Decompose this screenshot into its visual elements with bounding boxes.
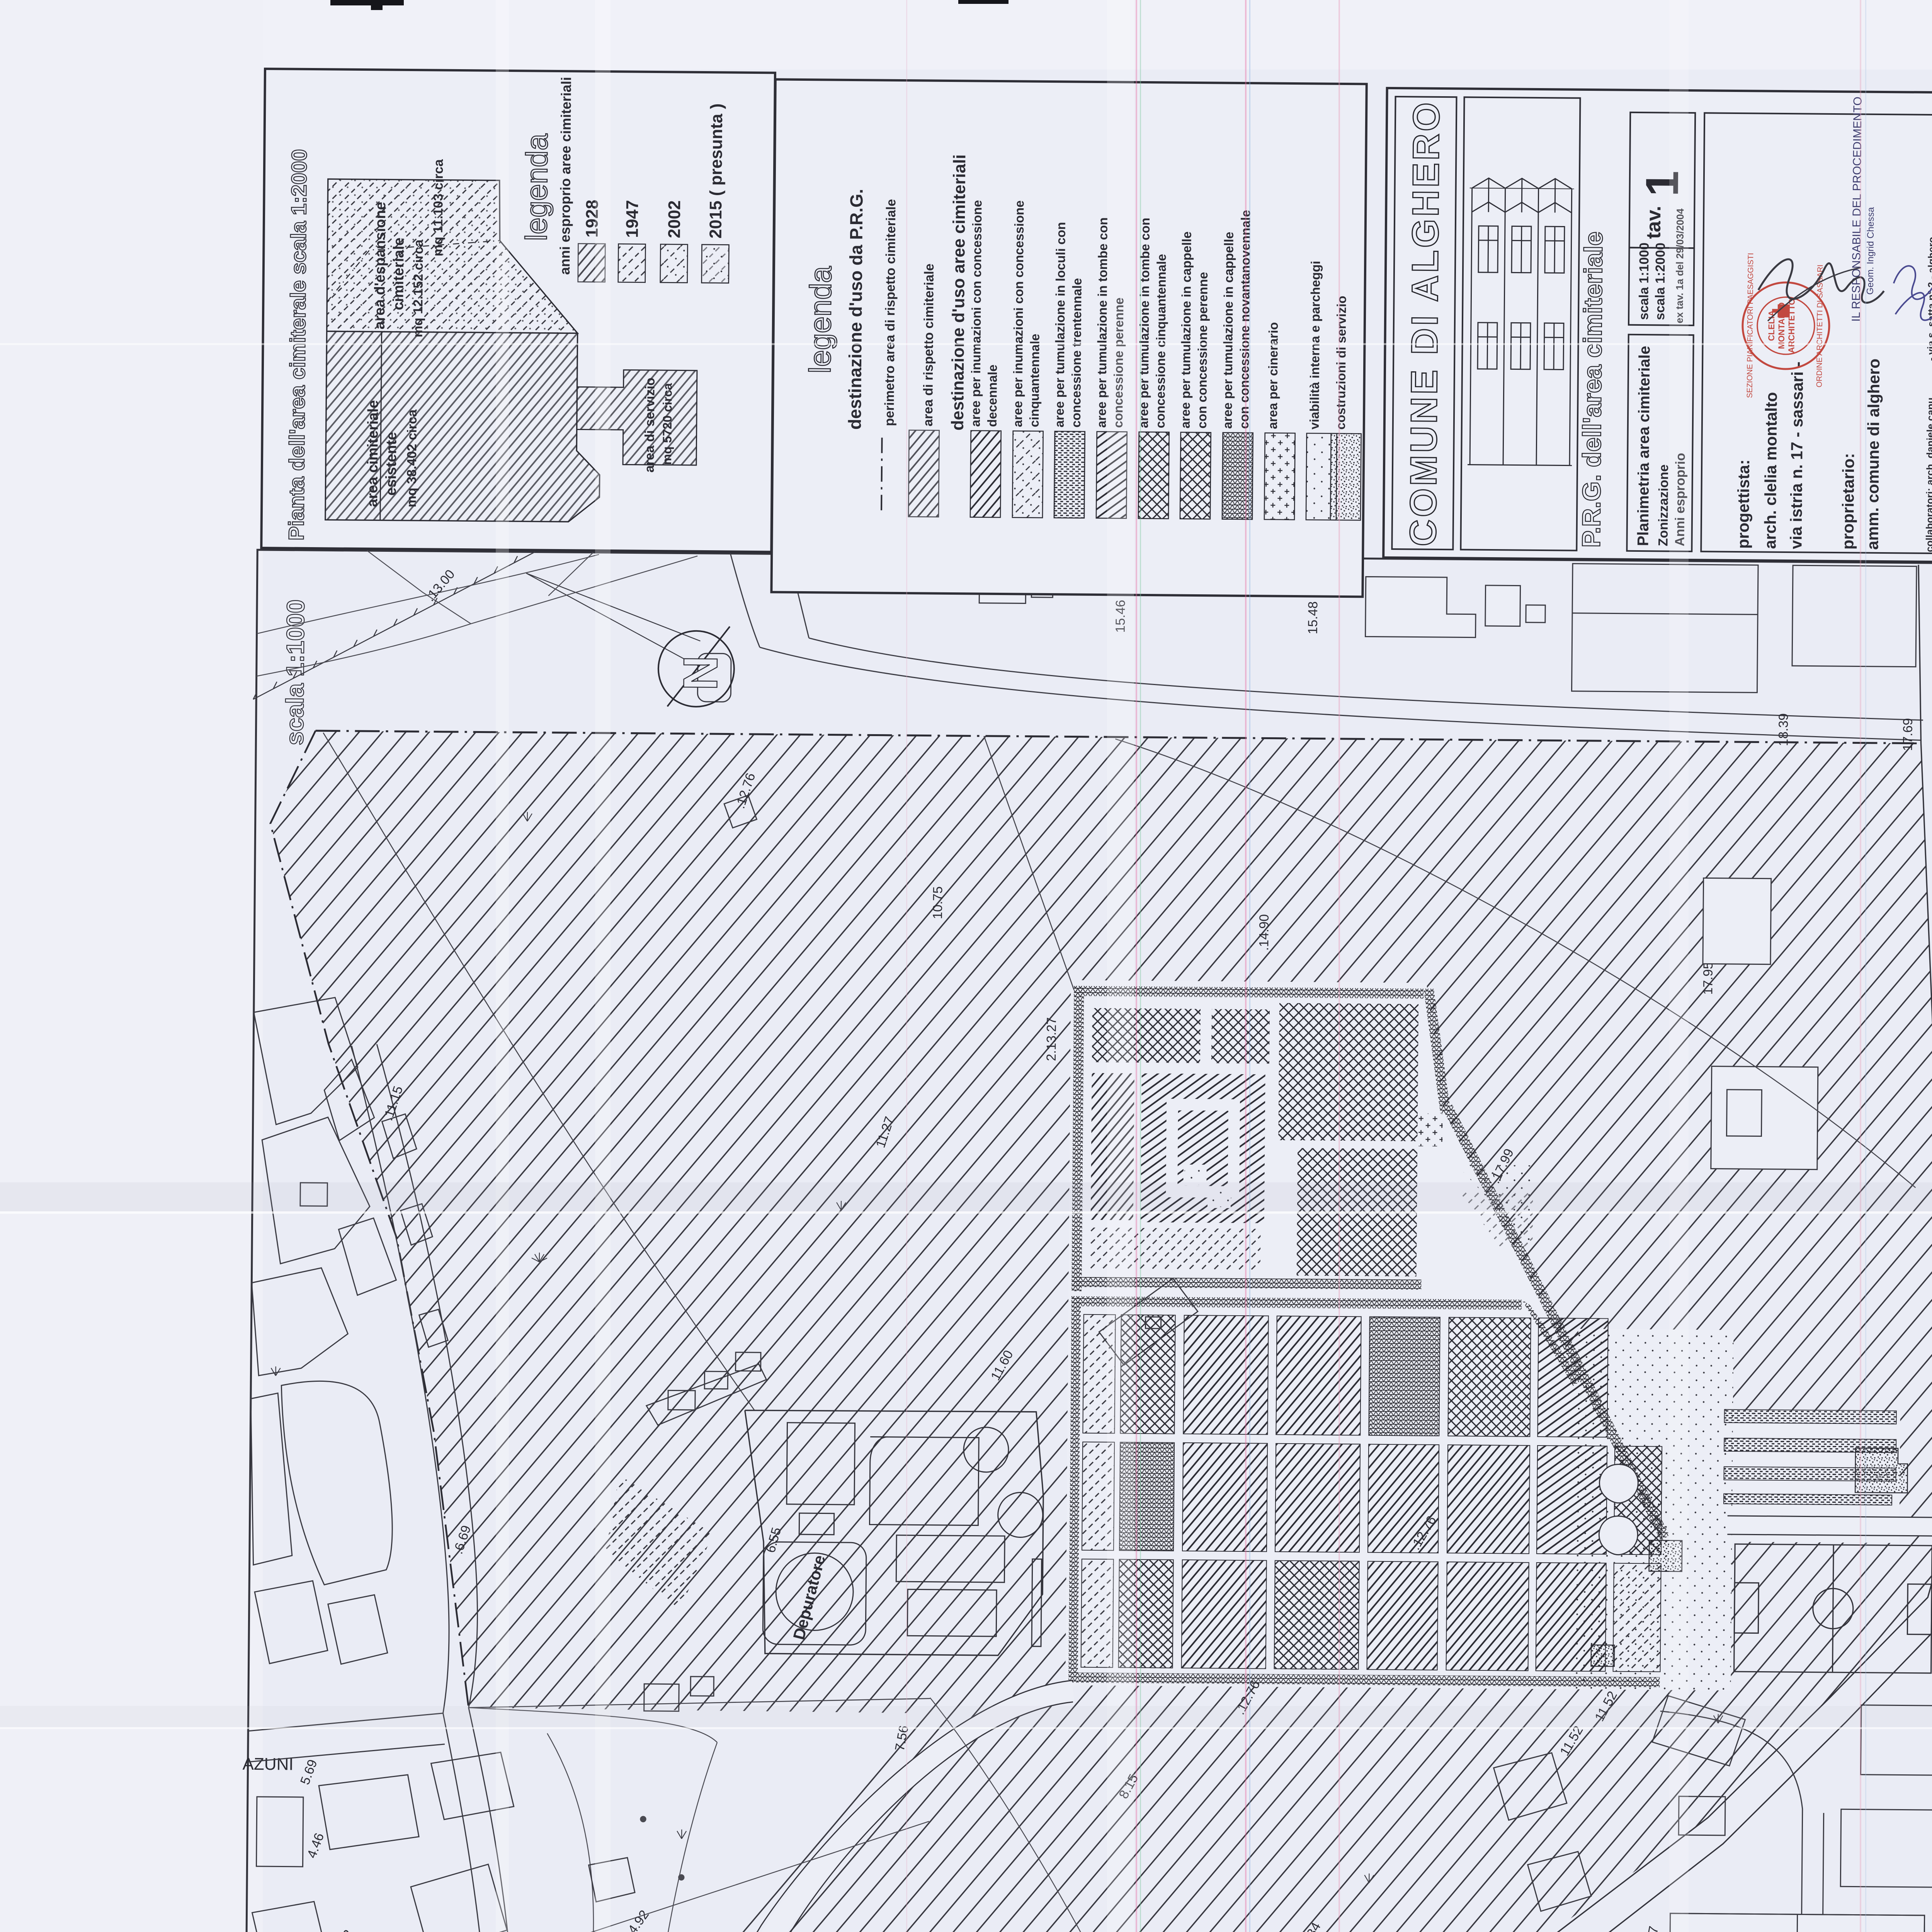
svg-text:Zonizzazione: Zonizzazione xyxy=(1656,464,1671,546)
svg-text:15.48: 15.48 xyxy=(1306,601,1321,634)
svg-text:anni esproprio aree cimiterial: anni esproprio aree cimiteriali xyxy=(557,77,574,275)
svg-text:aree per tumulazione in cappel: aree per tumulazione in cappelle xyxy=(1178,231,1194,429)
svg-text:esistente: esistente xyxy=(383,432,400,496)
svg-text:mq 12.152 circa: mq 12.152 circa xyxy=(411,239,426,338)
svg-text:legenda: legenda xyxy=(803,266,838,374)
svg-text:17.95: 17.95 xyxy=(1701,962,1716,995)
svg-text:cimiteriale: cimiteriale xyxy=(390,238,407,310)
svg-text:decennale: decennale xyxy=(985,364,1000,427)
svg-text:perimetro area di rispetto cim: perimetro area di rispetto cimiteriale xyxy=(882,199,899,426)
svg-text:arch. clelia montalto: arch. clelia montalto xyxy=(1761,392,1780,549)
svg-text:2.13.27: 2.13.27 xyxy=(1044,1017,1059,1061)
svg-text:mq 11.103 circa: mq 11.103 circa xyxy=(430,159,446,257)
svg-text:COMUNE DI ALGHERO: COMUNE DI ALGHERO xyxy=(1402,100,1447,546)
svg-text:viabilità interna e parcheggi: viabilità interna e parcheggi xyxy=(1307,261,1323,430)
svg-text:scala 1:2000: scala 1:2000 xyxy=(1653,243,1668,320)
svg-text:aree per tumulazione in loculi: aree per tumulazione in loculi con xyxy=(1052,222,1068,427)
svg-text:17.69: 17.69 xyxy=(1900,718,1915,751)
svg-text:cinquantennale: cinquantennale xyxy=(1027,334,1042,427)
svg-text:scala 1:1000: scala 1:1000 xyxy=(1636,243,1652,320)
svg-text:tav.: tav. xyxy=(1643,206,1665,239)
svg-text:mq 38.402 circa: mq 38.402 circa xyxy=(404,409,420,508)
svg-text:amm. comune di alghero: amm. comune di alghero xyxy=(1863,359,1883,550)
svg-text:legenda: legenda xyxy=(519,133,554,241)
svg-text:IL RESPONSABILE DEL PROCEDIMEN: IL RESPONSABILE DEL PROCEDIMENTO xyxy=(1850,97,1864,322)
svg-text:.14.90: .14.90 xyxy=(1257,914,1272,951)
svg-text:aree per tumulazione in tombe: aree per tumulazione in tombe con xyxy=(1136,218,1152,428)
svg-text:AZUNI: AZUNI xyxy=(242,1755,293,1774)
svg-text:via istria n. 17 - sassari -: via istria n. 17 - sassari - xyxy=(1787,361,1806,549)
svg-text:18.39: 18.39 xyxy=(1776,713,1791,746)
svg-text:2015 ( presunta ): 2015 ( presunta ) xyxy=(706,103,726,238)
svg-text:costruzioni di servizio: costruzioni di servizio xyxy=(1333,296,1349,430)
svg-text:collaboratori: arch. daniele: collaboratori: arch. daniele canu xyxy=(1923,398,1932,552)
svg-text:aree per inumazioni con conces: aree per inumazioni con concessione xyxy=(968,200,985,427)
svg-text:N: N xyxy=(673,655,728,690)
svg-text:destinazione d'uso da P.R.G.: destinazione d'uso da P.R.G. xyxy=(845,189,867,430)
svg-text:10.75: 10.75 xyxy=(930,886,946,919)
svg-text:con concessione perenne: con concessione perenne xyxy=(1195,272,1210,429)
svg-text:concessione trentennale: concessione trentennale xyxy=(1069,278,1084,427)
svg-text:aree per inumazioni con conces: aree per inumazioni con concessione xyxy=(1010,200,1027,427)
svg-text:proprietario:: proprietario: xyxy=(1838,453,1857,549)
svg-text:destinazione d'uso aree cimite: destinazione d'uso aree cimiteriali xyxy=(948,154,969,430)
svg-text:2002: 2002 xyxy=(665,200,684,238)
svg-text:mq 5720 circa: mq 5720 circa xyxy=(660,383,675,465)
svg-text:concessione cinquantennale: concessione cinquantennale xyxy=(1153,254,1169,428)
svg-text:con concessione novantanovenna: con concessione novantanovennale xyxy=(1237,210,1253,429)
svg-text:area di servizio: area di servizio xyxy=(642,378,658,473)
svg-text:SEZIONE PIANIFICATORI PAESAGGI: SEZIONE PIANIFICATORI PAESAGGISTI xyxy=(1745,253,1755,398)
svg-text:Planimetria area cimiteriale: Planimetria area cimiteriale xyxy=(1634,346,1653,546)
svg-text:1947: 1947 xyxy=(623,200,642,238)
svg-text:Geom. Ingrid Chessa: Geom. Ingrid Chessa xyxy=(1865,207,1876,295)
svg-text:progettista:: progettista: xyxy=(1734,459,1753,549)
svg-text:area d'espansione: area d'espansione xyxy=(372,202,389,329)
svg-text:aree per tumulazione in cappel: aree per tumulazione in cappelle xyxy=(1220,232,1236,429)
svg-text:area cimiteriale: area cimiteriale xyxy=(364,400,381,507)
svg-text:P.R.G. dell'area cimiteriale: P.R.G. dell'area cimiteriale xyxy=(1577,231,1607,548)
svg-text:area per cinerario: area per cinerario xyxy=(1265,322,1281,429)
